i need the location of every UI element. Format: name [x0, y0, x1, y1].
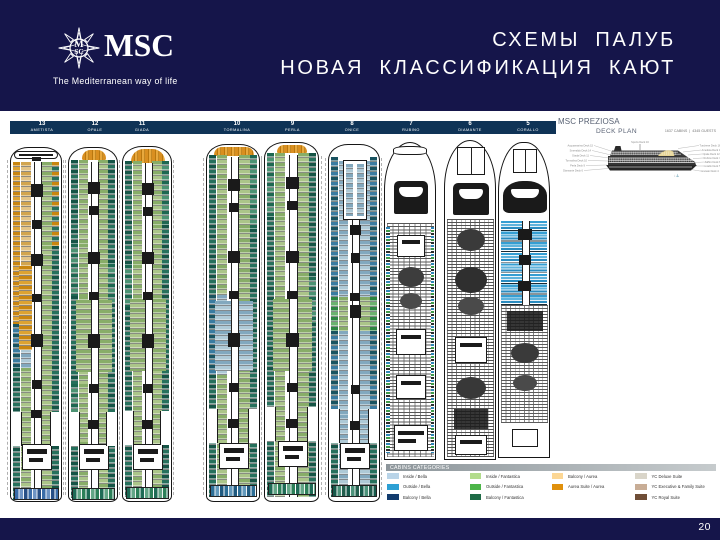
- svg-text:Rubino Deck 7: Rubino Deck 7: [704, 156, 720, 160]
- svg-text:Turchese Deck 16: Turchese Deck 16: [700, 144, 720, 148]
- svg-text:Granato Deck 4: Granato Deck 4: [701, 169, 720, 173]
- svg-text:Zaffiro Deck 6: Zaffiro Deck 6: [705, 160, 720, 164]
- svg-text:↓⚓: ↓⚓: [674, 174, 680, 178]
- svg-text:Acquamarina Deck 15: Acquamarina Deck 15: [567, 144, 593, 148]
- svg-text:Smeraldo Deck 14: Smeraldo Deck 14: [570, 149, 592, 153]
- svg-text:Opale Deck 12: Opale Deck 12: [703, 152, 720, 156]
- svg-text:Diamante Deck 6: Diamante Deck 6: [563, 169, 583, 173]
- svg-text:Ametista Deck 13: Ametista Deck 13: [702, 148, 720, 152]
- svg-text:Sports Deck 16: Sports Deck 16: [631, 140, 649, 144]
- svg-text:Corallo Deck 5: Corallo Deck 5: [704, 164, 720, 168]
- svg-text:Perla Deck 9: Perla Deck 9: [570, 164, 585, 168]
- svg-text:Giada Deck 11: Giada Deck 11: [572, 154, 590, 158]
- svg-text:Tormalina Deck 10: Tormalina Deck 10: [566, 159, 588, 163]
